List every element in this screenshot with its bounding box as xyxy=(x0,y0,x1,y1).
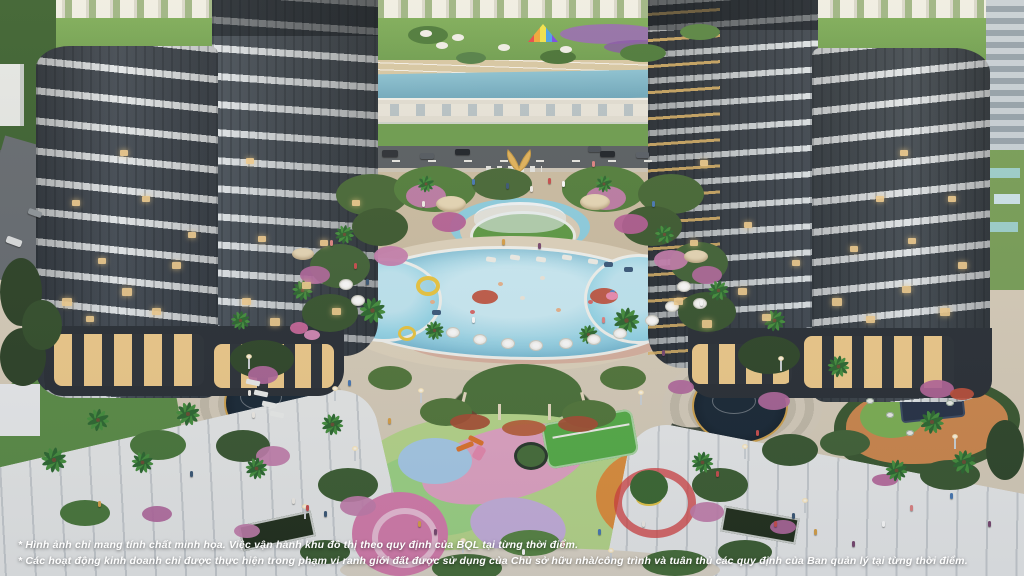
right-rowhouses xyxy=(988,222,1018,232)
tower-right-rear-crown xyxy=(648,0,818,30)
tower-left-rear-crown xyxy=(212,0,378,36)
golden-phoenix-sculpture xyxy=(504,148,534,196)
retail-shopfront xyxy=(214,344,334,388)
disclaimer-line-2: * Các hoạt động kinh doanh chỉ được thực… xyxy=(18,555,968,567)
pergola-column xyxy=(548,404,551,420)
tower-gold-accents xyxy=(648,0,720,368)
tower-left-rear xyxy=(212,0,378,356)
street-lamp-pole xyxy=(420,392,422,403)
retail-shopfront xyxy=(804,336,954,388)
glass-pavilion xyxy=(474,202,566,233)
retail-shopfront xyxy=(54,334,204,386)
planter-tree xyxy=(514,442,548,470)
corner-building-right xyxy=(986,0,1024,156)
disclaimer-line-1: * Hình ảnh chỉ mang tính chất minh họa. … xyxy=(18,539,578,551)
corner-building-left xyxy=(0,64,24,126)
right-rowhouses xyxy=(994,194,1020,204)
retail-shopfront xyxy=(692,344,792,384)
left-plaza-building xyxy=(0,384,40,436)
pergola-column xyxy=(498,404,501,420)
right-rowhouses xyxy=(990,168,1020,178)
feature-tree-canopy xyxy=(630,470,668,504)
aerial-render-scene: * Hình ảnh chỉ mang tính chất minh họa. … xyxy=(0,0,1024,576)
